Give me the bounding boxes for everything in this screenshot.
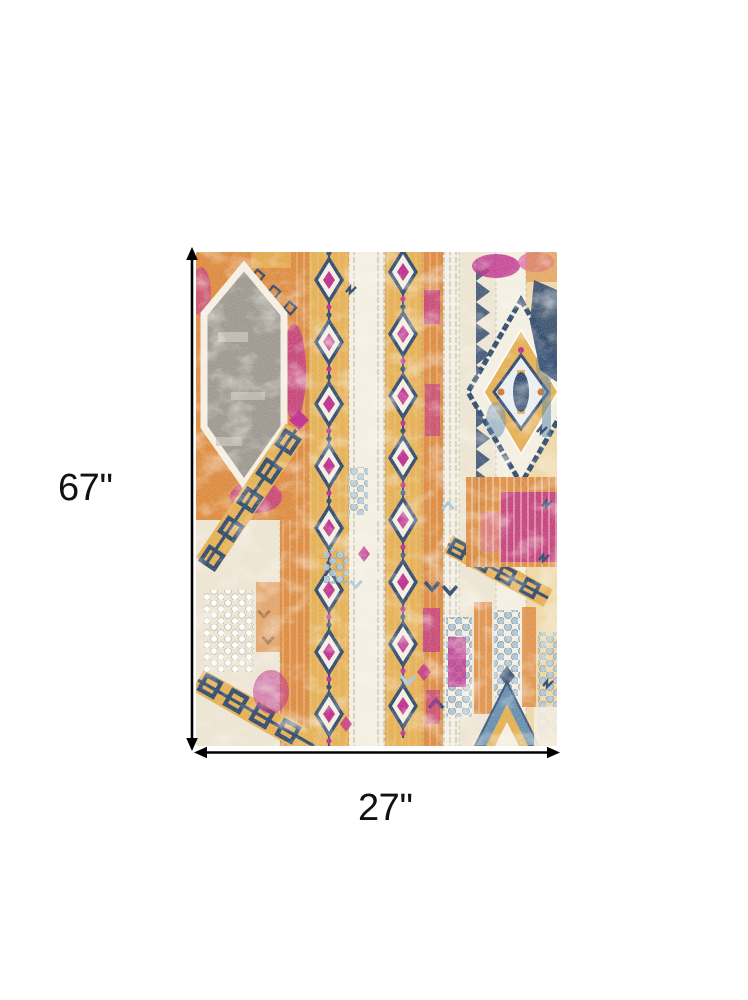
rug-image [196, 252, 557, 746]
height-dimension-label: 67'' [58, 469, 113, 507]
product-dimension-figure: 67'' 27'' [0, 0, 748, 1000]
width-dimension-arrow [193, 744, 561, 761]
height-dimension-arrow [184, 246, 200, 752]
width-dimension-label: 27'' [358, 789, 413, 827]
